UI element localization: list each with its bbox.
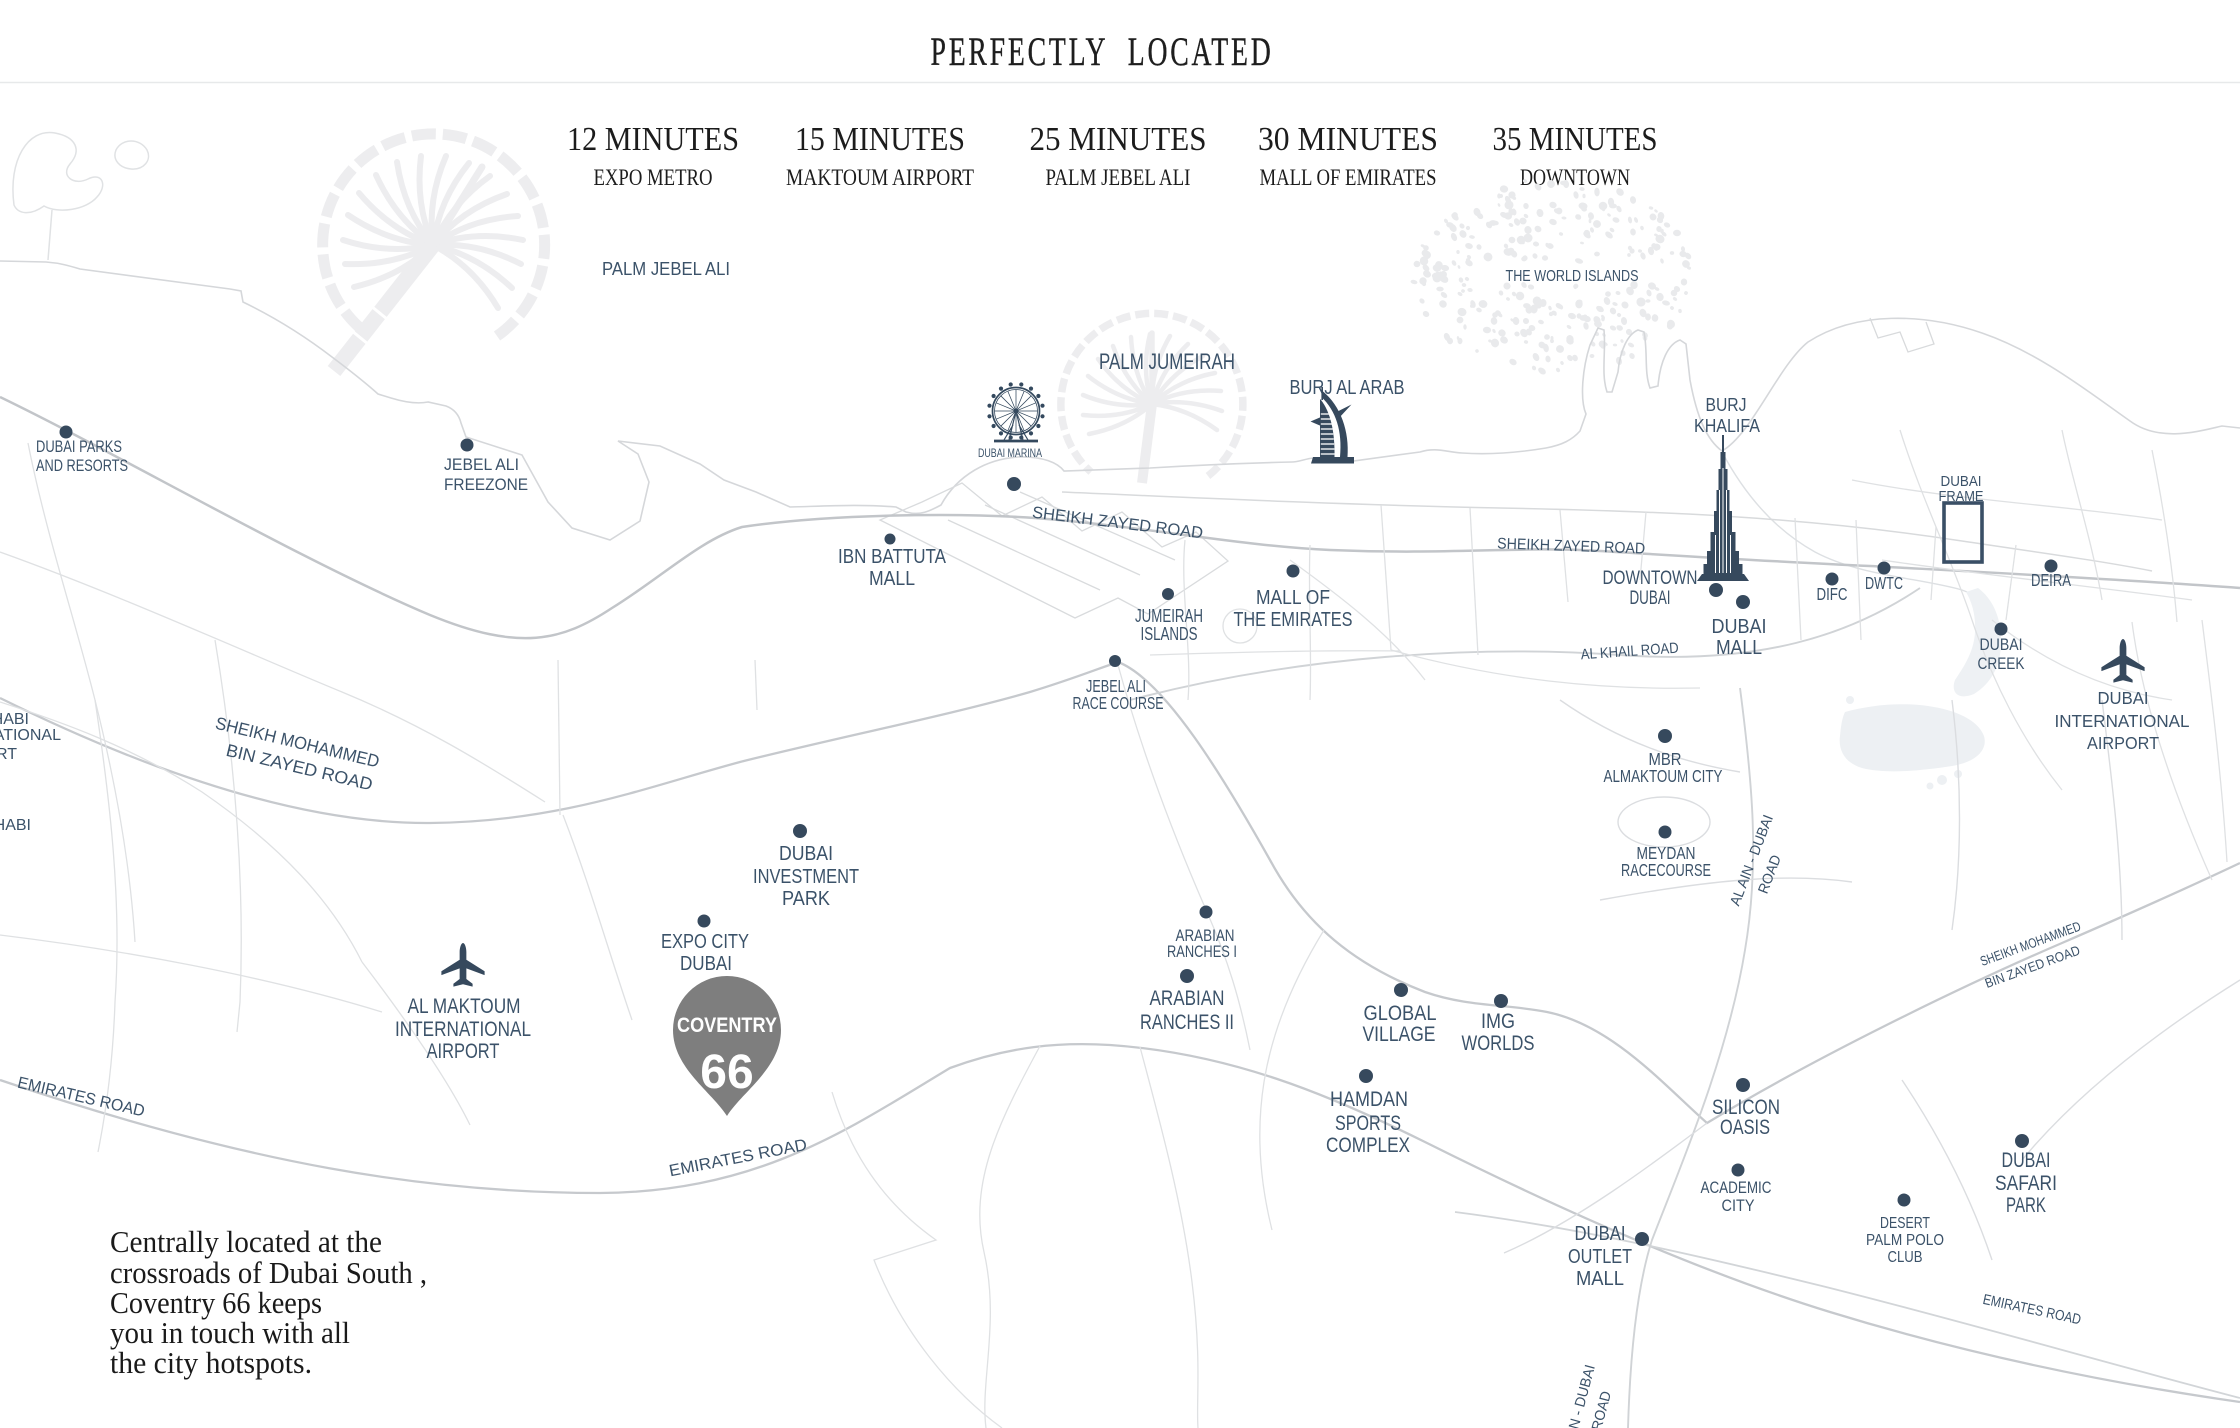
svg-text:Centrally located at the: Centrally located at the	[110, 1224, 382, 1259]
svg-text:AIRPORT: AIRPORT	[0, 746, 17, 763]
svg-text:30 MINUTES: 30 MINUTES	[1258, 121, 1438, 158]
svg-text:66: 66	[700, 1046, 753, 1099]
svg-text:DUBAI: DUBAI	[779, 843, 833, 865]
svg-text:MALL: MALL	[1716, 637, 1762, 659]
svg-text:DUBAI: DUBAI	[680, 953, 732, 975]
svg-text:PARK: PARK	[782, 888, 831, 910]
svg-text:DWTC: DWTC	[1865, 573, 1903, 593]
svg-text:SAFARI: SAFARI	[1995, 1172, 2057, 1195]
svg-text:ABU DHABI: ABU DHABI	[0, 711, 29, 728]
svg-text:IMG: IMG	[1481, 1010, 1515, 1033]
svg-text:BURJ: BURJ	[1706, 394, 1747, 415]
svg-text:AND RESORTS: AND RESORTS	[36, 457, 128, 475]
svg-text:INTERNATIONAL: INTERNATIONAL	[0, 727, 61, 744]
svg-text:MALL: MALL	[869, 568, 915, 590]
svg-text:DIFC: DIFC	[1817, 584, 1848, 604]
svg-text:DUBAI: DUBAI	[1712, 616, 1767, 638]
svg-text:INVESTMENT: INVESTMENT	[753, 866, 859, 888]
svg-text:DUBAI PARKS: DUBAI PARKS	[36, 438, 122, 456]
svg-text:PARK: PARK	[2006, 1194, 2046, 1217]
svg-text:RANCHES II: RANCHES II	[1140, 1011, 1234, 1034]
svg-text:HAMDAN: HAMDAN	[1330, 1088, 1408, 1111]
svg-text:CREEK: CREEK	[1978, 654, 2026, 673]
svg-text:IBN BATTUTA: IBN BATTUTA	[838, 546, 947, 568]
svg-text:DUBAI: DUBAI	[1980, 635, 2023, 654]
svg-text:15 MINUTES: 15 MINUTES	[795, 121, 965, 158]
svg-text:CITY: CITY	[1722, 1196, 1755, 1215]
svg-text:PALM POLO: PALM POLO	[1866, 1232, 1944, 1249]
svg-text:SPORTS: SPORTS	[1335, 1112, 1401, 1135]
svg-text:RACE COURSE: RACE COURSE	[1073, 693, 1164, 713]
svg-text:DEIRA: DEIRA	[2031, 570, 2071, 590]
svg-text:AIRPORT: AIRPORT	[427, 1040, 500, 1063]
svg-text:12 MINUTES: 12 MINUTES	[567, 121, 739, 158]
svg-text:ISLANDS: ISLANDS	[1141, 624, 1198, 644]
svg-text:DOWNTOWN: DOWNTOWN	[1603, 568, 1698, 589]
svg-text:GLOBAL: GLOBAL	[1364, 1002, 1437, 1025]
svg-text:THE EMIRATES: THE EMIRATES	[1234, 609, 1353, 631]
svg-text:PALM JUMEIRAH: PALM JUMEIRAH	[1099, 349, 1235, 374]
svg-text:DUBAI: DUBAI	[1630, 588, 1671, 609]
svg-text:RANCHES I: RANCHES I	[1167, 942, 1237, 961]
svg-text:DUBAI: DUBAI	[2002, 1149, 2051, 1172]
svg-text:AL MAKTOUM: AL MAKTOUM	[408, 995, 521, 1018]
svg-text:OASIS: OASIS	[1720, 1116, 1770, 1139]
svg-text:VILLAGE: VILLAGE	[1363, 1023, 1436, 1046]
svg-text:ABU DHABI: ABU DHABI	[0, 817, 31, 834]
svg-text:JEBEL ALI: JEBEL ALI	[444, 455, 519, 474]
svg-text:35 MINUTES: 35 MINUTES	[1493, 121, 1658, 158]
svg-text:the city hotspots.: the city hotspots.	[110, 1345, 312, 1380]
svg-text:25 MINUTES: 25 MINUTES	[1030, 121, 1207, 158]
svg-text:MALL OF: MALL OF	[1256, 587, 1330, 609]
svg-text:AIRPORT: AIRPORT	[2087, 733, 2159, 753]
svg-text:EXPO METRO: EXPO METRO	[594, 165, 713, 190]
svg-text:FREEZONE: FREEZONE	[444, 475, 528, 494]
svg-text:COMPLEX: COMPLEX	[1326, 1134, 1410, 1157]
svg-text:WORLDS: WORLDS	[1462, 1032, 1535, 1055]
svg-text:BURJ AL ARAB: BURJ AL ARAB	[1290, 376, 1405, 399]
svg-text:OUTLET: OUTLET	[1568, 1246, 1632, 1268]
svg-text:PALM JEBEL ALI: PALM JEBEL ALI	[602, 258, 730, 279]
svg-text:INTERNATIONAL: INTERNATIONAL	[2055, 711, 2190, 731]
svg-text:THE WORLD ISLANDS: THE WORLD ISLANDS	[1506, 268, 1639, 285]
svg-text:ALMAKTOUM CITY: ALMAKTOUM CITY	[1604, 766, 1723, 786]
svg-text:ACADEMIC: ACADEMIC	[1701, 1178, 1772, 1197]
svg-text:COVENTRY: COVENTRY	[677, 1014, 777, 1037]
svg-text:KHALIFA: KHALIFA	[1694, 415, 1761, 436]
svg-text:RACECOURSE: RACECOURSE	[1621, 860, 1711, 880]
svg-text:PALM JEBEL ALI: PALM JEBEL ALI	[1046, 165, 1191, 190]
svg-text:EXPO CITY: EXPO CITY	[661, 931, 749, 953]
svg-text:MALL OF EMIRATES: MALL OF EMIRATES	[1260, 165, 1437, 190]
svg-text:DUBAI: DUBAI	[2098, 688, 2149, 708]
svg-text:CLUB: CLUB	[1888, 1249, 1923, 1266]
svg-text:DESERT: DESERT	[1880, 1215, 1930, 1232]
svg-text:PERFECTLY LOCATED: PERFECTLY LOCATED	[931, 29, 1274, 74]
svg-text:MAKTOUM AIRPORT: MAKTOUM AIRPORT	[786, 165, 974, 190]
svg-text:MALL: MALL	[1576, 1268, 1624, 1290]
svg-text:ARABIAN: ARABIAN	[1150, 987, 1225, 1010]
svg-text:JUMEIRAH: JUMEIRAH	[1135, 606, 1203, 626]
svg-text:INTERNATIONAL: INTERNATIONAL	[395, 1018, 531, 1041]
svg-text:DUBAI: DUBAI	[1575, 1223, 1626, 1245]
svg-text:DUBAI MARINA: DUBAI MARINA	[978, 446, 1042, 460]
